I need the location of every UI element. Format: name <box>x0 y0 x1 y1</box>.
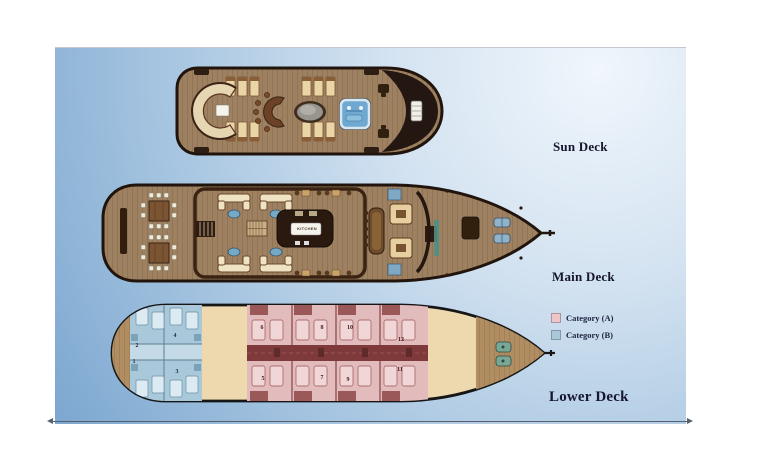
cabin-number: 8 <box>321 325 324 331</box>
stern-deck-wood <box>104 296 130 410</box>
windscreen-glass <box>434 220 439 256</box>
staircase-center <box>247 221 267 236</box>
cabin-number: 11 <box>397 367 403 373</box>
category-b-label: Category (B) <box>566 330 613 340</box>
lower-deck-plan <box>104 296 556 410</box>
bow-hatch <box>462 217 479 239</box>
cabin-number: 10 <box>347 325 353 331</box>
oval-table <box>294 101 326 123</box>
sun-deck-plan <box>172 64 448 158</box>
legend-row-category-a: Category (A) <box>551 313 613 323</box>
sun-deck-label: Sun Deck <box>553 139 608 155</box>
category-b-cabins <box>130 296 202 410</box>
cabin-number: 7 <box>321 375 324 381</box>
category-a-swatch <box>551 313 561 323</box>
rule-right-arrow-icon <box>687 418 693 424</box>
category-a-label: Category (A) <box>566 313 613 323</box>
staircase-port <box>196 221 215 237</box>
legend-row-category-b: Category (B) <box>551 330 613 340</box>
sofa-table <box>216 105 229 116</box>
cabin-number: 4 <box>174 333 177 339</box>
category-legend: Category (A) Category (B) <box>551 313 613 347</box>
kitchen-label: KITCHEN <box>297 227 317 231</box>
panel-bottom-rule <box>53 421 687 422</box>
lower-deck-label: Lower Deck <box>549 389 629 406</box>
cabin-number: 9 <box>347 377 350 383</box>
main-deck-plan <box>97 180 557 286</box>
jacuzzi <box>340 99 371 130</box>
bowsprit <box>544 350 555 356</box>
stern-bench <box>120 208 127 254</box>
deck-plan-page: 1 2 3 4 5 6 7 8 9 10 11 12 KITCHEN Sun D… <box>0 0 768 461</box>
bowsprit <box>541 230 555 236</box>
cabin-number: 6 <box>261 325 264 331</box>
category-a-cabins <box>247 296 428 410</box>
main-deck-label: Main Deck <box>552 269 615 285</box>
cabin-number: 1 <box>133 359 136 365</box>
cabin-number: 12 <box>398 337 404 343</box>
cabin-number: 5 <box>262 376 265 382</box>
rule-left-arrow-icon <box>47 418 53 424</box>
category-b-swatch <box>551 330 561 340</box>
cabin-number: 3 <box>176 369 179 375</box>
cabin-number: 2 <box>136 343 139 349</box>
